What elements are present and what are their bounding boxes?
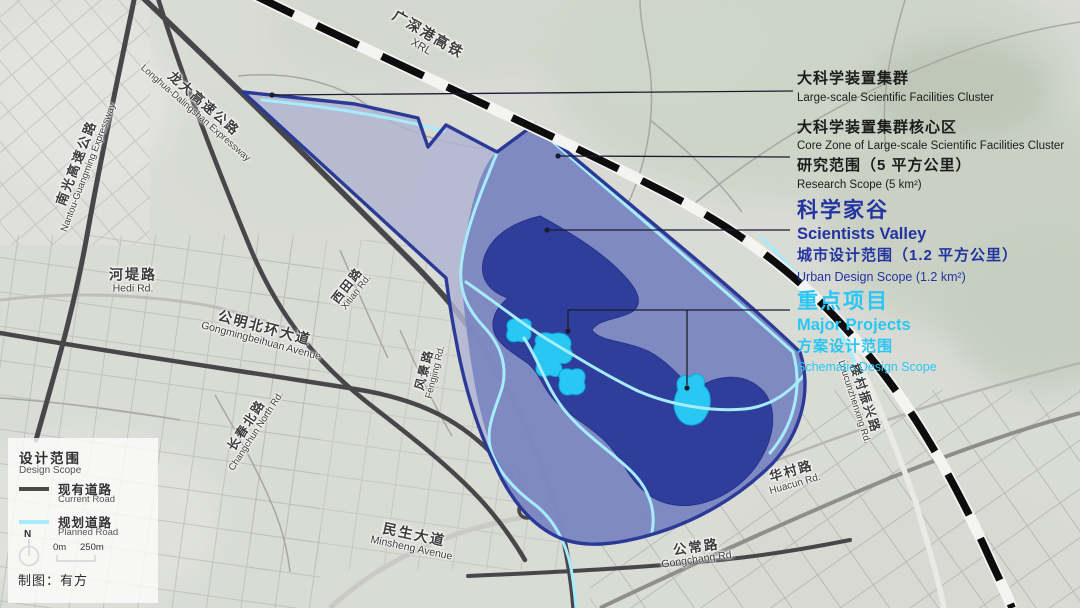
anno-major-projects-cn: 重点项目 <box>797 291 889 312</box>
planned-road-swatch <box>19 520 49 524</box>
anno-facilities-cluster-cn: 大科学装置集群 <box>797 71 909 86</box>
scale-end-label: 250m <box>80 542 104 553</box>
anno-schematic-cn: 方案设计范围 <box>797 339 893 354</box>
anno-schematic-en: Schematic Design Scope <box>797 361 937 374</box>
scale-start-label: 0m <box>53 542 66 553</box>
anno-research-scope-en: Research Scope (5 km²) <box>797 180 922 192</box>
anno-research-scope-cn: 研究范围（5 平方公里） <box>797 158 972 173</box>
current-road-swatch <box>19 487 49 491</box>
anno-core-zone-en: Core Zone of Large-scale Scientific Faci… <box>797 141 1064 153</box>
anno-valley-en: Scientists Valley <box>797 226 926 243</box>
anno-urban-design-en: Urban Design Scope (1.2 km²) <box>797 271 966 284</box>
legend-panel: 设计范围 Design Scope 现有道路 Current Road 规划道路… <box>8 438 158 603</box>
label-hedi-road: 河堤路 Hedi Rd. <box>109 267 157 294</box>
anno-urban-design-cn: 城市设计范围（1.2 平方公里） <box>797 248 1018 263</box>
anno-core-zone-cn: 大科学装置集群核心区 <box>797 120 957 135</box>
north-label: N <box>24 529 31 540</box>
anno-valley-cn: 科学家谷 <box>797 200 889 221</box>
legend-title-cn: 设计范围 <box>19 447 81 467</box>
credit-text: 制图：有方 <box>18 570 88 589</box>
scientists-valley-map: 广深港高铁 XRL 南光高速公路 Nantou-Guangming Expres… <box>0 0 1080 608</box>
anno-major-projects-en: Major Projects <box>797 317 911 334</box>
anno-facilities-cluster-en: Large-scale Scientific Facilities Cluste… <box>797 93 994 105</box>
legend-planned-road-en: Planned Road <box>58 527 118 538</box>
legend-current-road-en: Current Road <box>58 494 115 505</box>
legend-title-en: Design Scope <box>19 465 81 476</box>
